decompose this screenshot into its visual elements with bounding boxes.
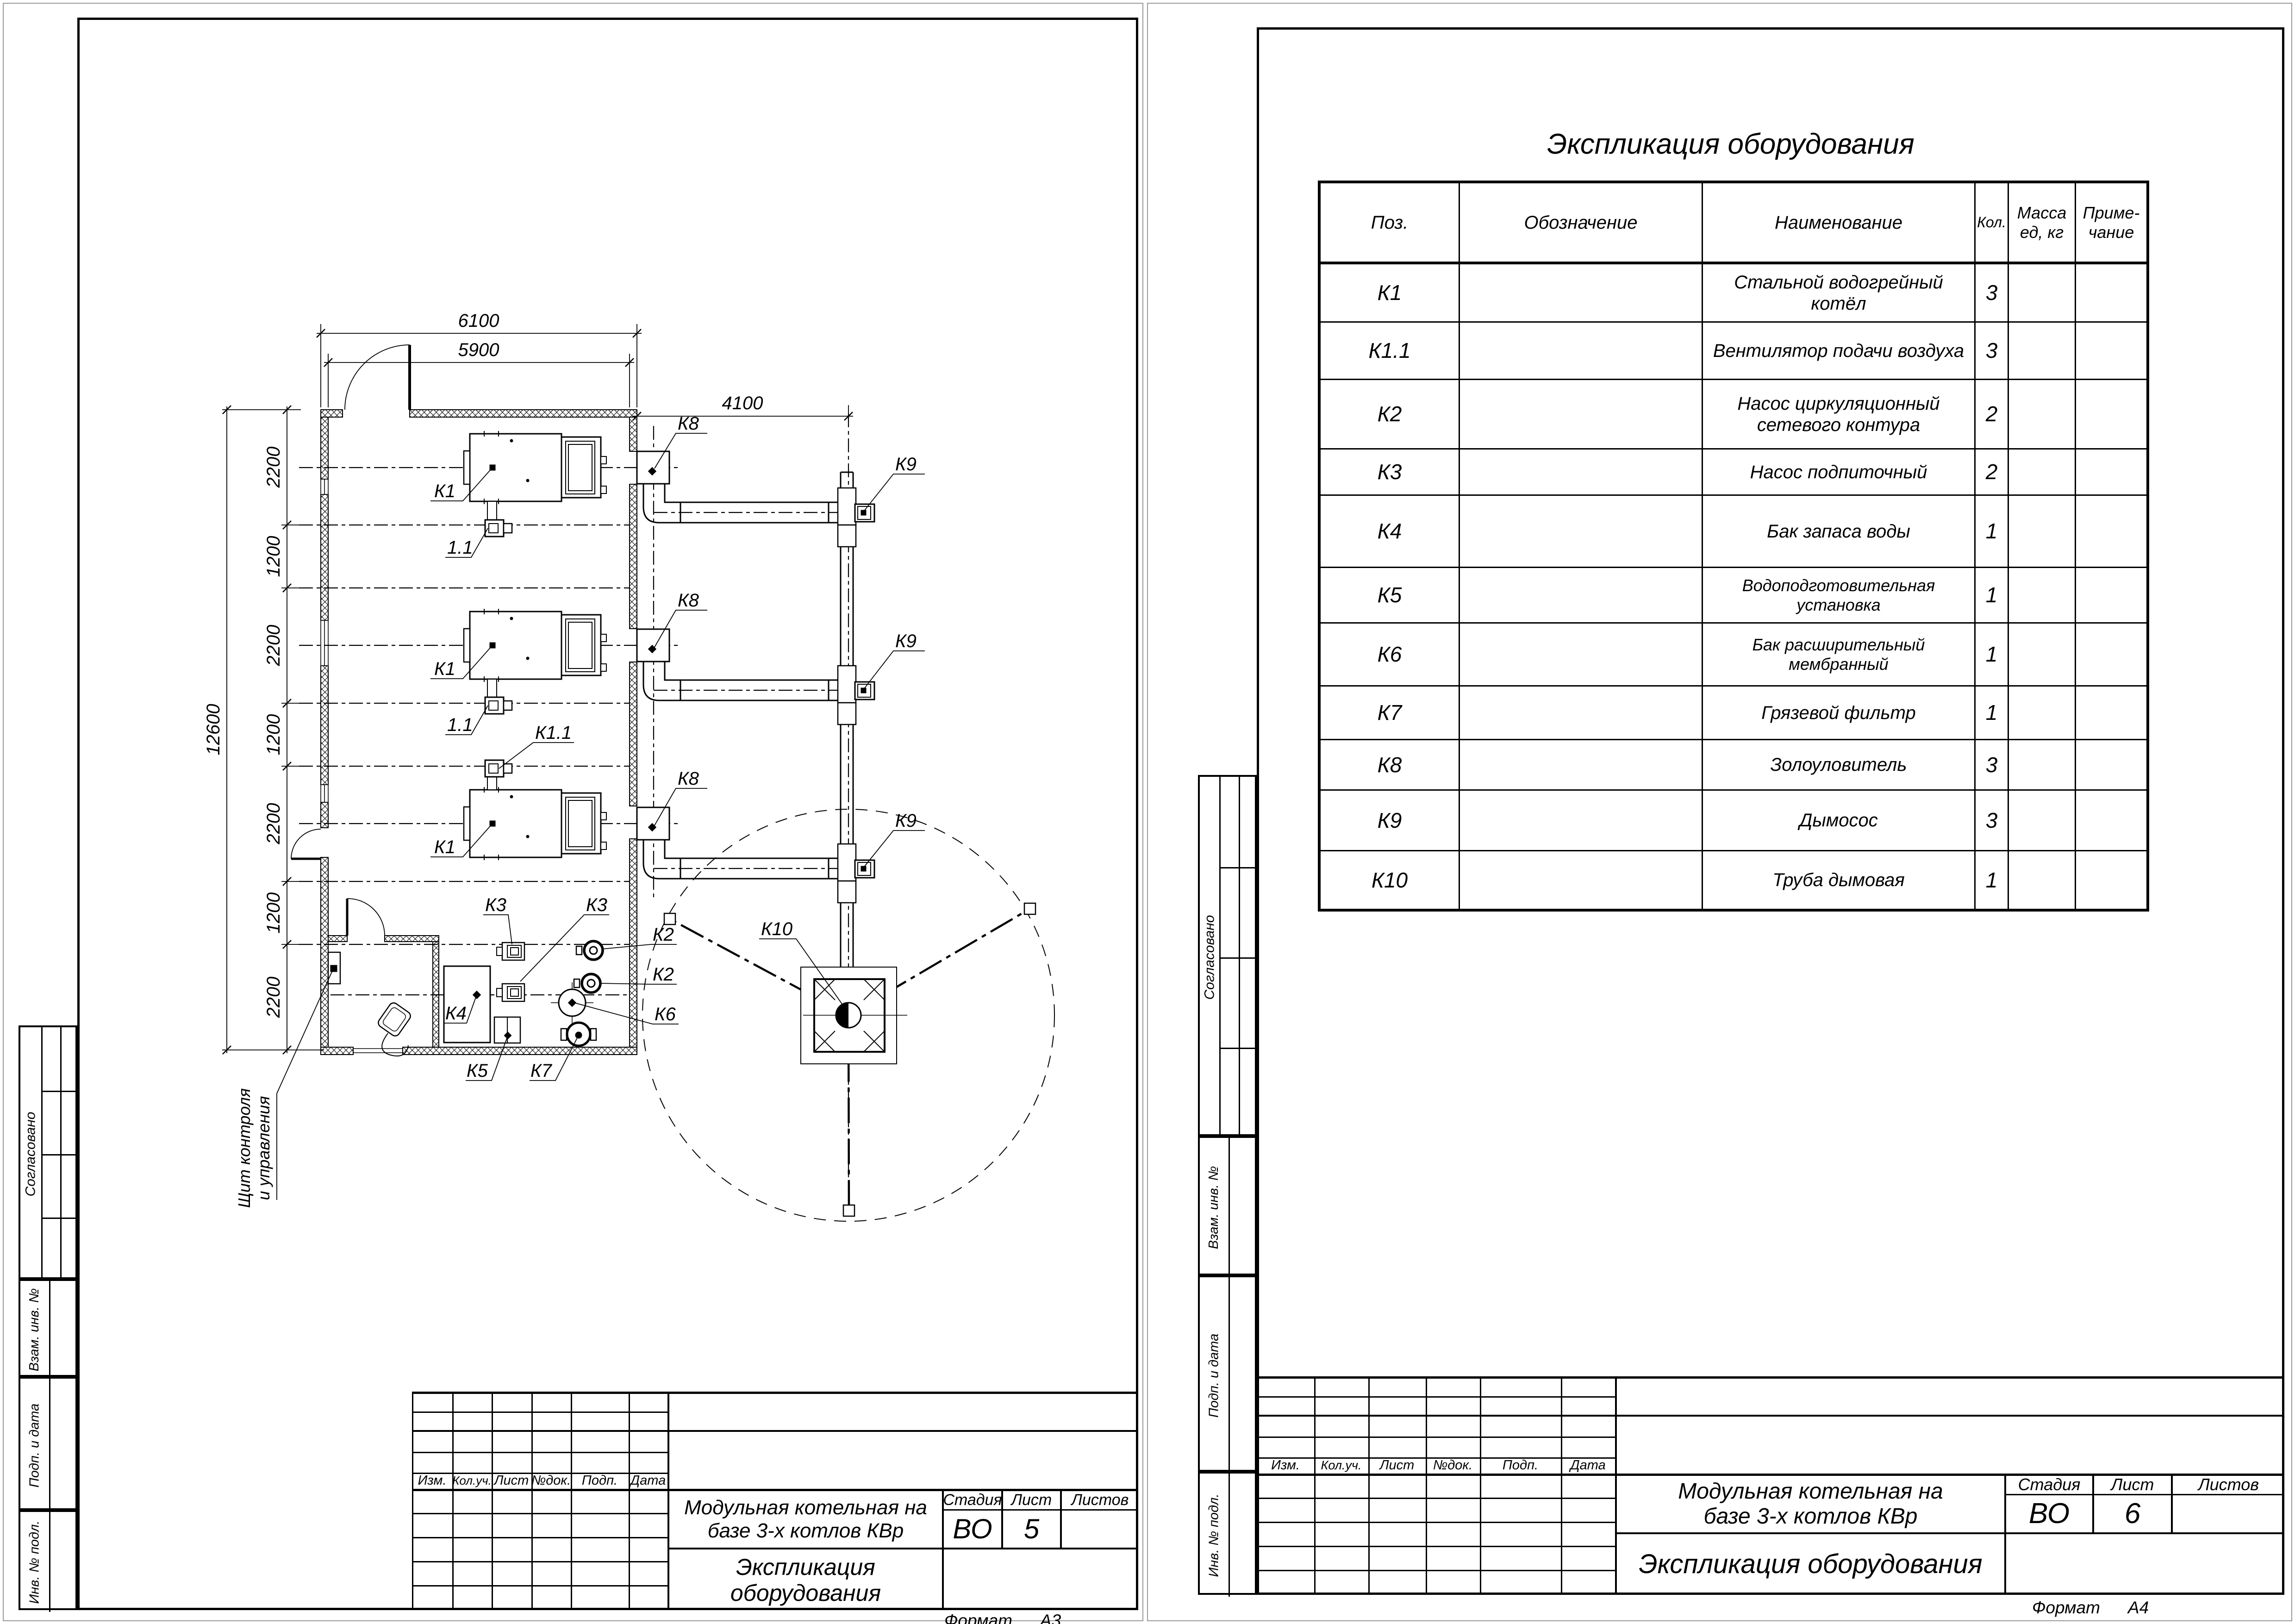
spec-row-name: Труба дымовая [1703, 851, 1976, 909]
label-k1-3: К1 [434, 837, 455, 857]
spec-row-qty: 2 [1976, 450, 2009, 496]
flue-system [637, 451, 874, 979]
spec-row-qty: 1 [1976, 851, 2009, 909]
spec-row-designation [1460, 851, 1703, 909]
spec-row-pos: К8 [1321, 740, 1460, 791]
drawing-page: Согласовано Взам. инв. № Подп. и дата Ин… [0, 0, 2295, 1624]
boiler-2 [464, 609, 606, 714]
dim-4100: 4100 [722, 393, 763, 413]
stamp-sign-date-right: Подп. и дата [1198, 1275, 1257, 1472]
rev-header-koluch-r: Кол.уч. [1314, 1457, 1368, 1474]
stamp-inv-no-label-r: Инв. № подл. [1207, 1493, 1222, 1577]
stage-header-r: Стадия [2006, 1475, 2092, 1494]
sheet-header-r: Лист [2094, 1475, 2171, 1494]
spec-row-pos: К1 [1321, 264, 1460, 323]
stamp-inv-no-right: Инв. № подл. [1198, 1472, 1257, 1595]
doc-title-a4: Экспликация оборудования [1617, 1534, 2004, 1595]
spec-header-qty: Кол. [1976, 183, 2009, 264]
doors [291, 345, 410, 936]
spec-row-qty: 1 [1976, 496, 2009, 568]
dim-1200-3: 1200 [263, 893, 284, 934]
dim-6100: 6100 [458, 311, 499, 331]
stamp-approved-label-r: Согласовано [1202, 915, 1217, 1000]
label-k5: К5 [467, 1061, 488, 1081]
label-k8-2: К8 [678, 590, 699, 611]
pump-k2-2 [574, 974, 600, 993]
dim-2200-4: 2200 [263, 977, 284, 1018]
flue-ducts [643, 472, 853, 979]
format-note-a4: Формат А4 [2032, 1598, 2264, 1618]
label-k8-1: К8 [678, 413, 699, 434]
pump-room [328, 941, 603, 1056]
washbasin [376, 1001, 412, 1038]
ash-catcher-k8-3 [637, 807, 669, 840]
label-k6: К6 [655, 1004, 676, 1024]
spec-row-qty: 1 [1976, 687, 2009, 740]
bottom-opening [353, 1049, 403, 1053]
spec-row-pos: К6 [1321, 624, 1460, 687]
label-k9-3: К9 [895, 811, 917, 831]
stamp-replace-inv-right: Взам. инв. № [1198, 1136, 1257, 1275]
pump-k3-2 [497, 984, 524, 1001]
label-k7: К7 [530, 1061, 553, 1081]
rev-header-data-r: Дата [1561, 1457, 1615, 1474]
spec-row-name: Грязевой фильтр [1703, 687, 1976, 740]
rev-header-list-r: Лист [1368, 1457, 1426, 1474]
stamp-approved-right: Согласовано [1198, 775, 1257, 1136]
spec-header-note: Приме-чание [2076, 183, 2146, 264]
spec-header-name: Наименование [1703, 183, 1976, 264]
dim-5900: 5900 [458, 340, 499, 360]
dim-2200-1: 2200 [263, 447, 284, 488]
sheets-total-r [2173, 1495, 2284, 1532]
label-k2-1: К2 [653, 924, 674, 945]
boiler-3 [464, 760, 606, 860]
spec-row-pos: К2 [1321, 380, 1460, 450]
rev-header-podp-r: Подп. [1480, 1457, 1561, 1474]
project-title-a4: Модульная котельная набазе 3-х котлов КВ… [1617, 1475, 2004, 1532]
spec-row-designation [1460, 323, 1703, 380]
spec-row-name: Золоуловитель [1703, 740, 1976, 791]
label-k3-1: К3 [485, 895, 506, 915]
spec-row-designation [1460, 496, 1703, 568]
spec-row-name: Водоподготовительная установка [1703, 568, 1976, 624]
spec-row-designation [1460, 568, 1703, 624]
ash-catcher-k8-1 [637, 451, 669, 484]
label-fan-1: 1.1 [447, 537, 473, 558]
boilers [464, 431, 606, 860]
spec-row-qty: 1 [1976, 624, 2009, 687]
stamp-replace-inv-label-r: Взам. инв. № [1207, 1166, 1222, 1249]
spec-header-designation: Обозначение [1460, 183, 1703, 264]
spec-row-name: Насос циркуляционный сетевого контура [1703, 380, 1976, 450]
sheets-header-r: Листов [2173, 1475, 2284, 1494]
spec-row-qty: 3 [1976, 323, 2009, 380]
label-k1-1: К1 [434, 481, 455, 501]
pump-k3-1 [497, 943, 524, 960]
filter-k7 [561, 1023, 596, 1046]
spec-row-name: Бак запаса воды [1703, 496, 1976, 568]
label-panel-l2: и управления [254, 1096, 273, 1200]
spec-header-pos: Поз. [1321, 183, 1460, 264]
smoke-exhauster-k9-3 [855, 860, 874, 878]
boiler-1 [464, 431, 606, 537]
label-k3-2: К3 [586, 895, 607, 915]
dim-1200-2: 1200 [263, 714, 284, 756]
spec-row-name: Насос подпиточный [1703, 450, 1976, 496]
spec-row-designation [1460, 380, 1703, 450]
label-fan-2: 1.1 [447, 715, 473, 735]
smoke-exhauster-k9-2 [855, 682, 874, 700]
spec-row-designation [1460, 264, 1703, 323]
spec-row-pos: К7 [1321, 687, 1460, 740]
spec-row-name: Стальной водогрейный котёл [1703, 264, 1976, 323]
spec-row-pos: К5 [1321, 568, 1460, 624]
spec-table-title: Экспликация оборудования [1318, 121, 2144, 168]
label-k8-3: К8 [678, 768, 699, 789]
spec-row-qty: 3 [1976, 264, 2009, 323]
spec-row-qty: 3 [1976, 740, 2009, 791]
spec-row-qty: 2 [1976, 380, 2009, 450]
spec-row-designation [1460, 624, 1703, 687]
spec-row-designation [1460, 687, 1703, 740]
label-panel-l1: Щит контроля [235, 1088, 254, 1208]
titleblock-a4: Изм. Кол.уч. Лист №док. Подп. Дата Модул… [1257, 1376, 2284, 1595]
spec-row-qty: 1 [1976, 568, 2009, 624]
spec-row-qty: 3 [1976, 791, 2009, 851]
spec-row-designation [1460, 791, 1703, 851]
label-k2-2: К2 [653, 964, 674, 985]
ash-catcher-k8-2 [637, 629, 669, 662]
sheet-number-r: 6 [2094, 1495, 2171, 1532]
spec-header-mass: Массаед, кг [2009, 183, 2076, 264]
format-value-a4: А4 [2128, 1598, 2149, 1618]
spec-row-name: Вентилятор подачи воздуха [1703, 323, 1976, 380]
dim-12600: 12600 [203, 704, 224, 755]
label-k4: К4 [445, 1003, 467, 1024]
spec-row-pos: К3 [1321, 450, 1460, 496]
spec-row-pos: К1.1 [1321, 323, 1460, 380]
label-k1-2: К1 [434, 659, 455, 679]
dim-2200-3: 2200 [263, 803, 284, 845]
spec-row-name: Бак расширительный мембранный [1703, 624, 1976, 687]
water-treatment-k5 [494, 1017, 520, 1043]
label-k9-2: К9 [895, 631, 917, 651]
label-k9-1: К9 [895, 454, 917, 475]
label-k11: К1.1 [535, 723, 572, 743]
spec-row-pos: К10 [1321, 851, 1460, 909]
rev-header-ndok-r: №док. [1426, 1457, 1480, 1474]
spec-row-name: Дымосос [1703, 791, 1976, 851]
spec-row-designation [1460, 450, 1703, 496]
stage-value-r: ВО [2006, 1495, 2092, 1532]
stamp-sign-date-label-r: Подп. и дата [1207, 1333, 1222, 1418]
spec-table: Поз. Обозначение Наименование Кол. Масса… [1318, 181, 2149, 912]
spec-row-pos: К4 [1321, 496, 1460, 568]
dim-2200-2: 2200 [263, 625, 284, 667]
rev-header-izm-r: Изм. [1257, 1457, 1314, 1474]
control-panel [328, 952, 340, 984]
spec-row-designation [1460, 740, 1703, 791]
spec-row-pos: К9 [1321, 791, 1460, 851]
format-label-a4: Формат [2032, 1598, 2100, 1618]
label-k10: К10 [761, 919, 792, 939]
dim-1200-1: 1200 [263, 536, 284, 577]
smoke-exhauster-k9-1 [855, 504, 874, 522]
